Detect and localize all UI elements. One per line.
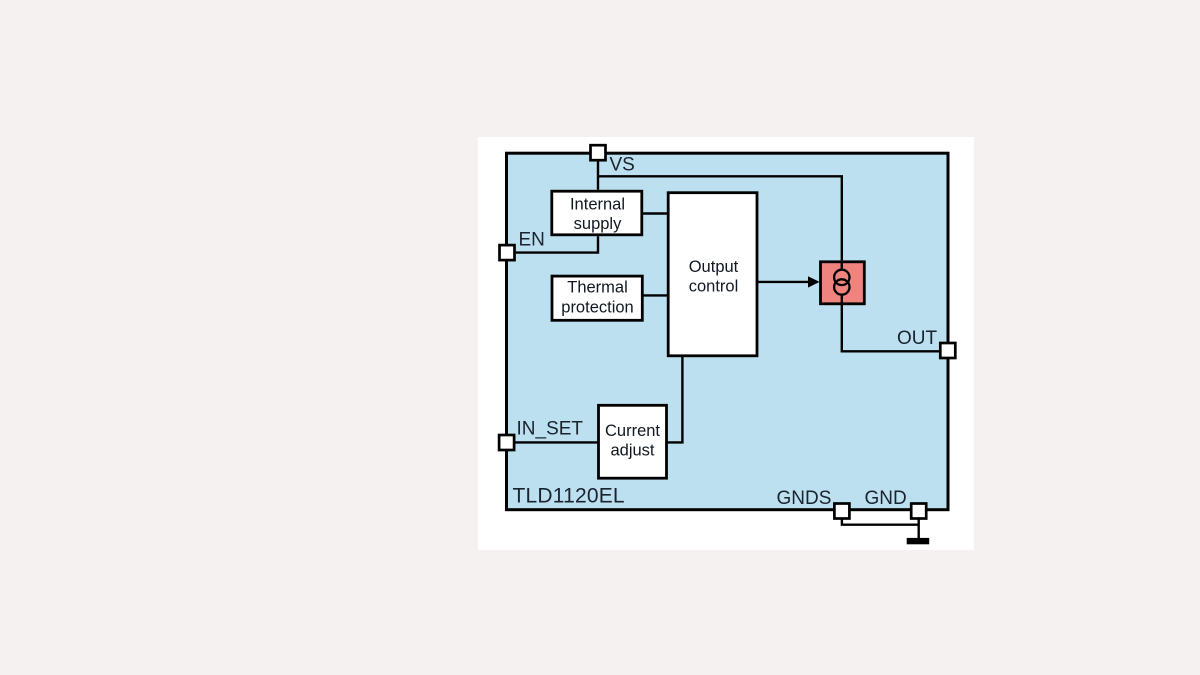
svg-text:Current: Current: [605, 422, 660, 440]
svg-text:VS: VS: [610, 155, 635, 176]
svg-text:protection: protection: [561, 299, 633, 317]
svg-text:GND: GND: [865, 488, 907, 509]
svg-text:Internal: Internal: [570, 196, 625, 214]
svg-text:IN_SET: IN_SET: [517, 419, 584, 440]
svg-text:OUT: OUT: [897, 328, 938, 349]
svg-text:EN: EN: [519, 230, 545, 251]
svg-text:control: control: [689, 277, 739, 295]
svg-text:Output: Output: [689, 258, 739, 276]
svg-text:Thermal: Thermal: [567, 278, 628, 296]
svg-text:TLD1120EL: TLD1120EL: [513, 485, 625, 508]
svg-text:supply: supply: [574, 215, 622, 233]
svg-text:adjust: adjust: [610, 442, 654, 460]
svg-text:GNDS: GNDS: [777, 488, 832, 509]
